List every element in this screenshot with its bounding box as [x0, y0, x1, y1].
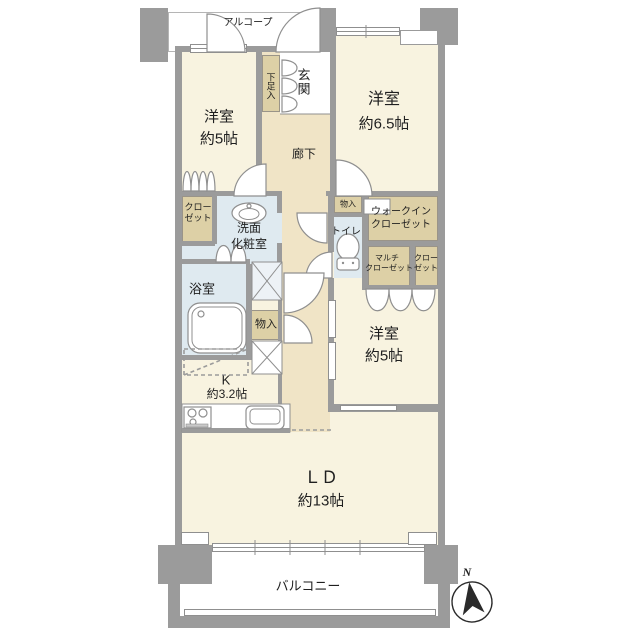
bedroom-tl-size: 約5帖 — [200, 130, 238, 147]
shoe-box-label: 下足入 — [265, 73, 278, 100]
kitchen-size: 約3.2帖 — [207, 388, 248, 402]
bathroom-label: 浴室 — [189, 283, 215, 298]
stove-icon — [184, 407, 211, 428]
bathtub-icon — [188, 303, 246, 353]
toilet-icon — [337, 234, 359, 270]
storage-toilet-label: 物入 — [340, 199, 356, 208]
hallway-label: 廊下 — [292, 148, 316, 162]
bedroom-tl-name: 洋室 — [204, 108, 234, 125]
bedroom-mr-name: 洋室 — [369, 325, 399, 342]
multi-closet-label-2: クローゼット — [365, 263, 413, 272]
closet-left-label-1: クロー — [184, 202, 211, 212]
closet-right-label-2: ゼット — [414, 263, 438, 272]
storage-door-arc — [284, 315, 312, 343]
ld-door-arc — [284, 273, 324, 313]
door-arcs — [207, 8, 372, 343]
bedroom-tr-size: 約6.5帖 — [359, 115, 410, 132]
floor-plan: アルコープ 玄関 下足入 廊下 洋室 約5帖 洋室 約6.5帖 クロー ゼット … — [0, 0, 640, 640]
washroom-door-arc — [297, 213, 327, 243]
toilet-label: トイレ — [331, 226, 361, 238]
multi-closet-label-1: マルチ — [375, 253, 399, 262]
plan-symbols — [0, 0, 640, 640]
bedroom-tr-name: 洋室 — [368, 91, 400, 109]
walk-in-closet-label-1: ウォークイン — [371, 206, 431, 218]
walk-in-closet-label-2: クローゼット — [371, 219, 431, 231]
washroom-label-2: 化粧室 — [231, 238, 267, 252]
balcony-label: バルコニー — [276, 580, 341, 595]
bedroom-tl-door-arc — [234, 164, 266, 196]
living-dining-size: 約13帖 — [298, 492, 345, 509]
alcove-label: アルコープ — [223, 17, 272, 29]
entrance-door-arc — [276, 8, 320, 52]
storage-hall-label: 物入 — [255, 319, 277, 332]
north-arrow-icon — [449, 579, 494, 624]
bedroom-tr-door-arc — [336, 160, 372, 196]
bedroom-mr-size: 約5帖 — [365, 347, 403, 364]
closet-right-label-1: クロー — [414, 253, 438, 262]
closet-left-label-2: ゼット — [184, 213, 211, 223]
washbasin-icon — [232, 203, 266, 223]
north-label: N — [463, 566, 472, 580]
sink-icon — [246, 406, 284, 429]
washroom-label-1: 洗面 — [237, 222, 261, 236]
entrance-label: 玄関 — [294, 68, 313, 96]
living-dining-name: ＬＤ — [304, 468, 338, 488]
